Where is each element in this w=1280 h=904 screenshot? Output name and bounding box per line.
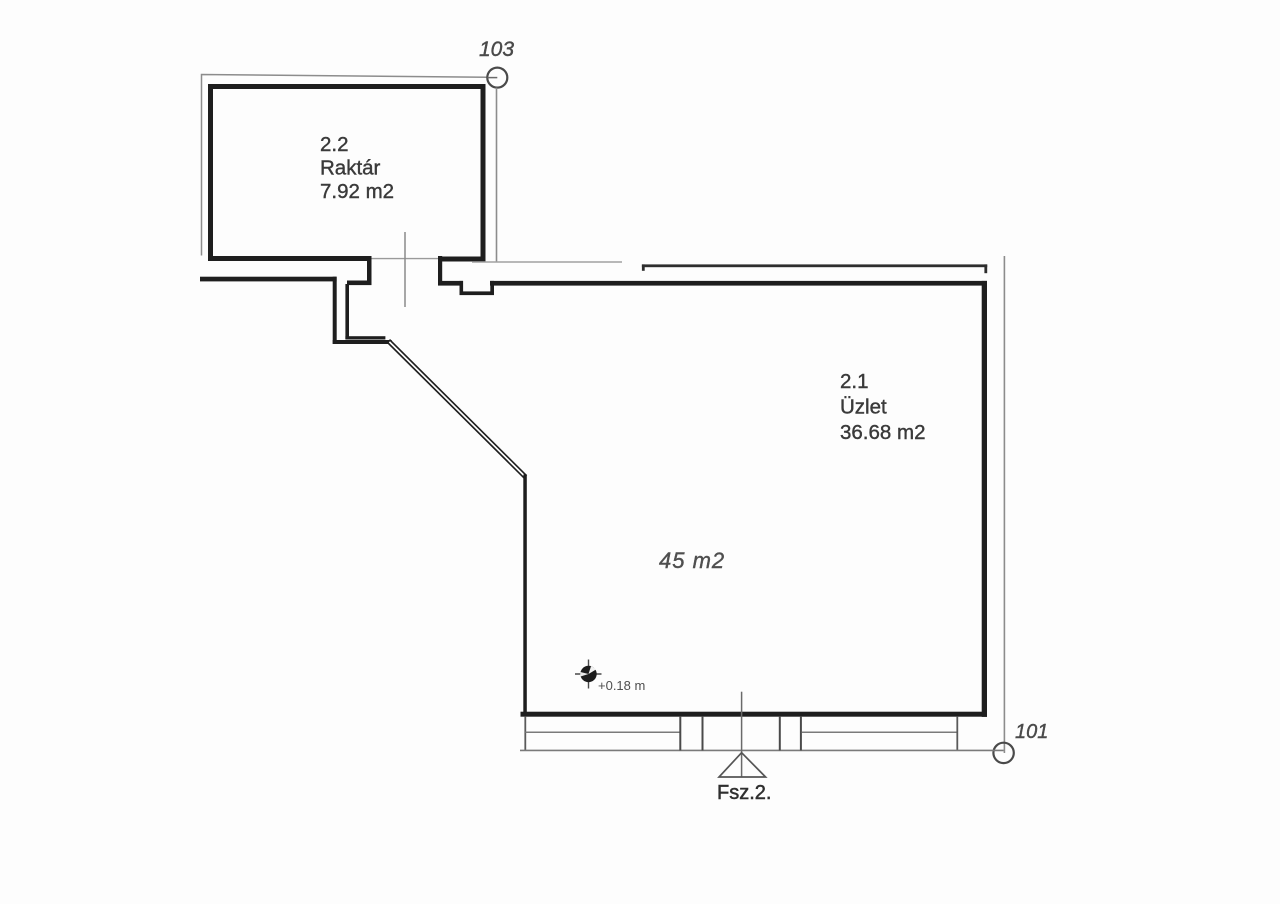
svg-text:103: 103 [479, 38, 514, 61]
svg-text:7.92 m2: 7.92 m2 [320, 180, 394, 203]
svg-text:2.1: 2.1 [840, 370, 869, 393]
svg-text:2.2: 2.2 [320, 133, 349, 156]
svg-text:Raktár: Raktár [320, 157, 381, 180]
svg-text:45 m2: 45 m2 [659, 548, 725, 573]
svg-text:36.68 m2: 36.68 m2 [840, 421, 925, 444]
svg-text:+0.18 m: +0.18 m [598, 678, 645, 693]
svg-text:Üzlet: Üzlet [840, 396, 887, 419]
svg-text:101: 101 [1015, 721, 1048, 743]
svg-text:Fsz.2.: Fsz.2. [717, 782, 771, 804]
